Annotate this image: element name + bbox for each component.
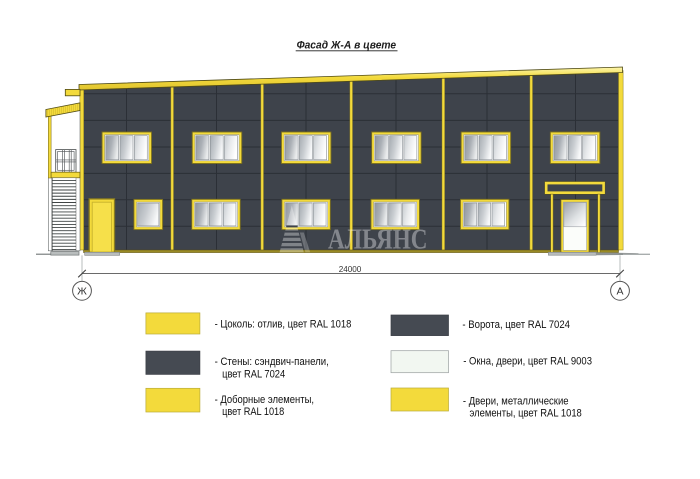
svg-text:АЛЬЯНС: АЛЬЯНС: [328, 223, 428, 255]
svg-text:Ж: Ж: [77, 286, 87, 298]
svg-text:А: А: [616, 286, 623, 298]
svg-text:цвет RAL 7024: цвет RAL 7024: [222, 368, 285, 380]
svg-text:- Цоколь: отлив, цвет RAL 1018: - Цоколь: отлив, цвет RAL 1018: [215, 319, 352, 331]
svg-text:Фасад Ж-А в цвете: Фасад Ж-А в цвете: [297, 40, 397, 52]
svg-text:24000: 24000: [339, 265, 362, 274]
svg-text:- Стены: сэндвич-панели,: - Стены: сэндвич-панели,: [215, 356, 329, 368]
svg-text:- Ворота, цвет RAL 7024: - Ворота, цвет RAL 7024: [462, 319, 570, 331]
svg-text:- Окна, двери, цвет RAL 9003: - Окна, двери, цвет RAL 9003: [463, 356, 592, 368]
svg-text:элементы, цвет RAL 1018: элементы, цвет RAL 1018: [470, 407, 582, 419]
svg-text:цвет RAL 1018: цвет RAL 1018: [222, 406, 284, 418]
svg-text:- Доборные элементы,: - Доборные элементы,: [215, 394, 314, 406]
svg-text:- Двери, металлические: - Двери, металлические: [463, 396, 569, 408]
